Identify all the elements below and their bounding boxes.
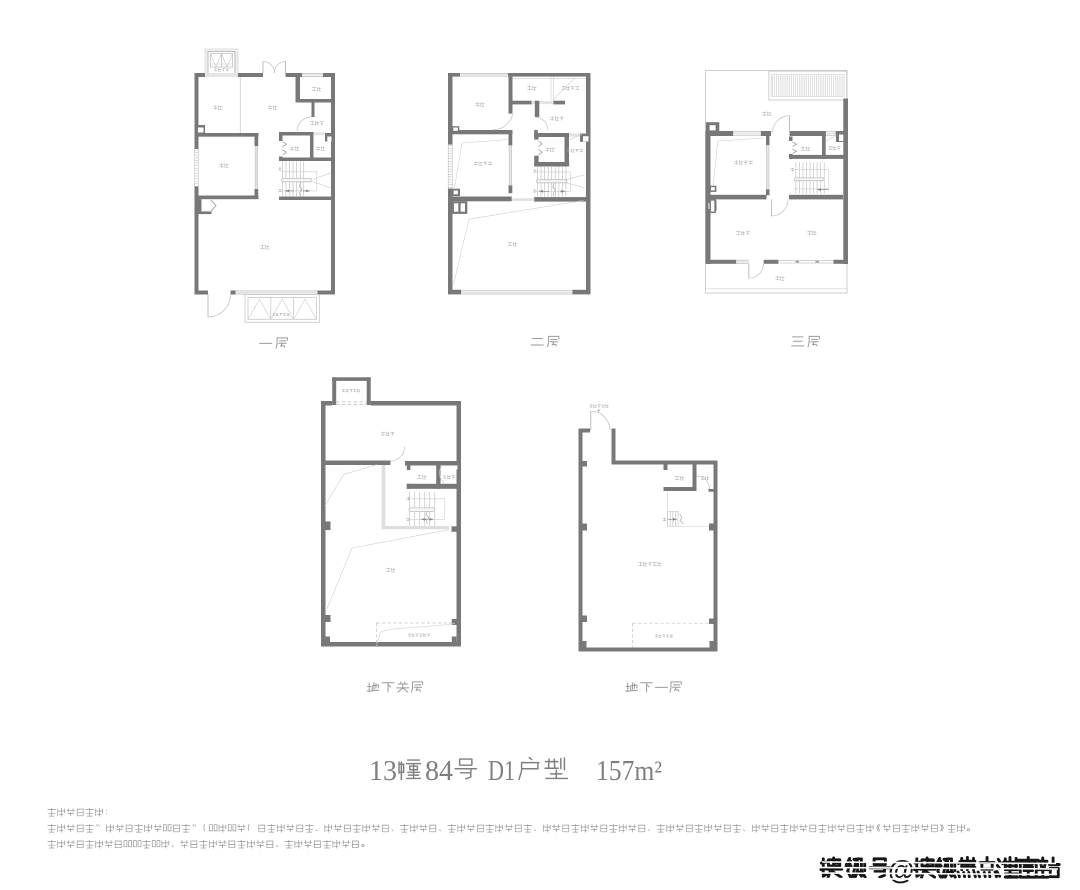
svg-text:@: @ [888,855,914,885]
svg-text:D1: D1 [488,756,515,787]
svg-text:157m²: 157m² [596,756,662,787]
svg-text:84: 84 [425,756,453,787]
svg-text:13: 13 [369,756,397,787]
